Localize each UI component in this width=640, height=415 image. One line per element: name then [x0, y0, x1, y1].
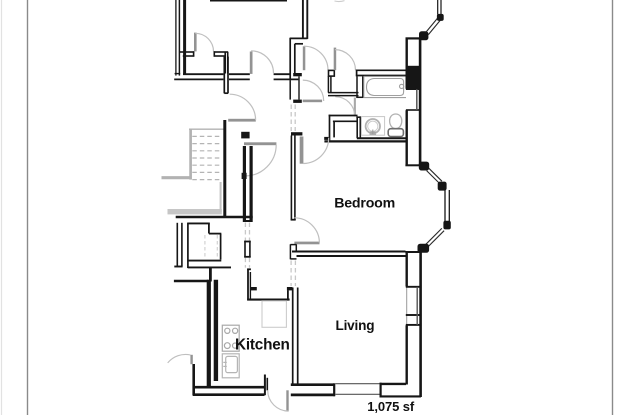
- svg-text:Living: Living: [336, 318, 375, 333]
- svg-text:1,075 sf: 1,075 sf: [367, 399, 415, 414]
- svg-text:Bedroom: Bedroom: [334, 196, 395, 212]
- svg-text:Kitchen: Kitchen: [235, 336, 290, 353]
